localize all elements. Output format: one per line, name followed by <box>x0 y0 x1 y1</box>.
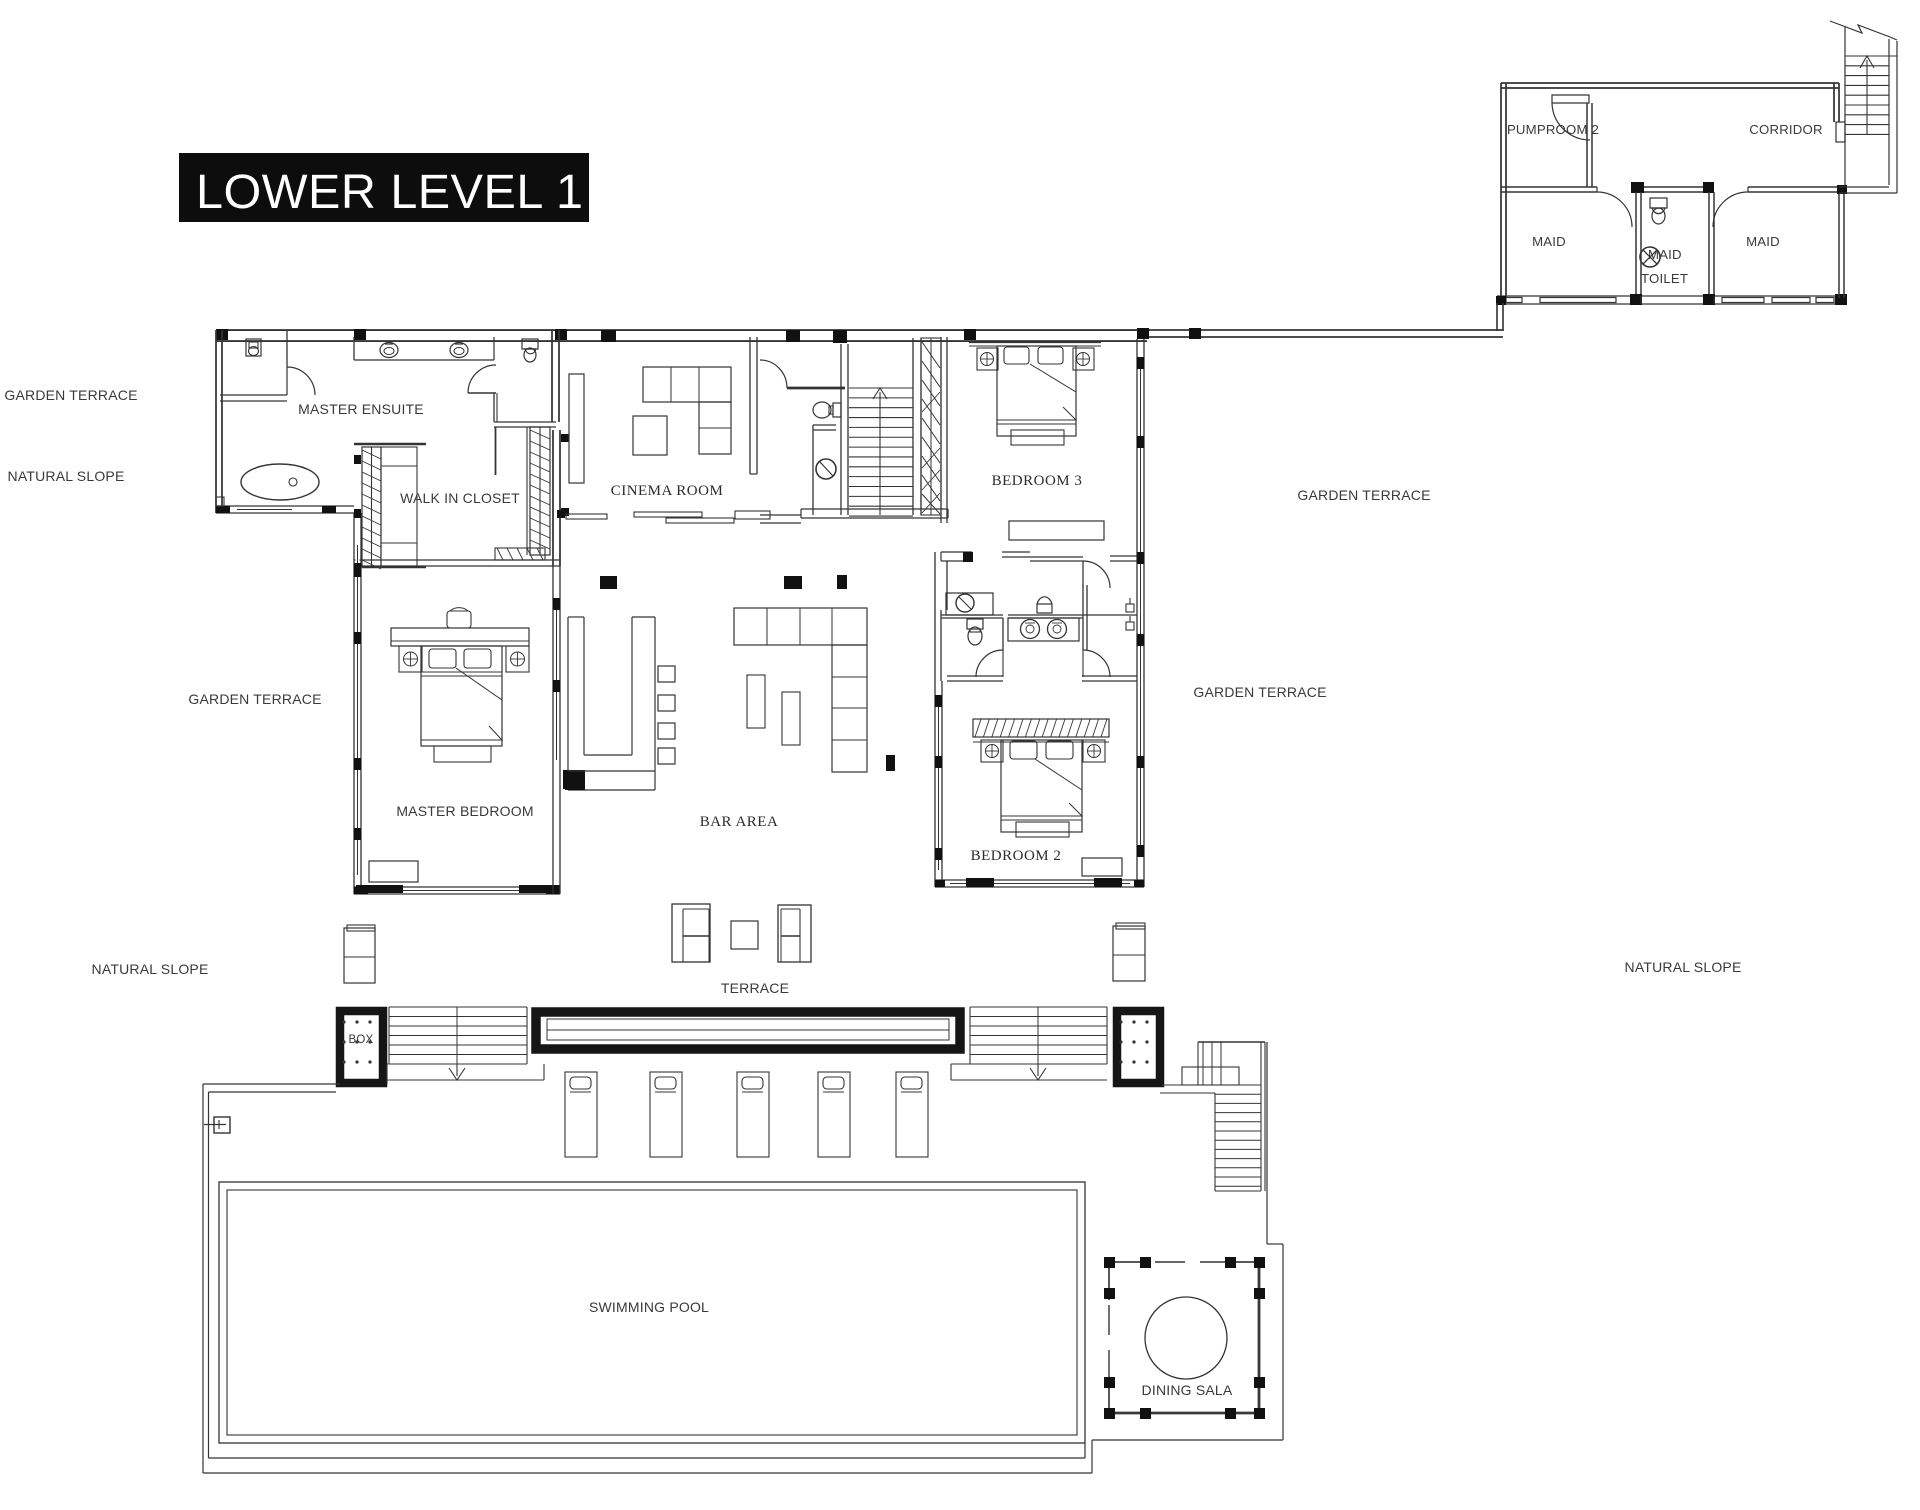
svg-text:GARDEN TERRACE: GARDEN TERRACE <box>4 387 137 403</box>
svg-text:TOILET: TOILET <box>1641 271 1688 286</box>
svg-text:GARDEN TERRACE: GARDEN TERRACE <box>1297 487 1430 503</box>
svg-text:MAID: MAID <box>1746 234 1780 249</box>
svg-text:NATURAL SLOPE: NATURAL SLOPE <box>92 961 209 977</box>
svg-text:WALK IN CLOSET: WALK IN CLOSET <box>400 490 520 506</box>
svg-text:BOX: BOX <box>349 1034 374 1046</box>
svg-text:LOWER LEVEL 1: LOWER LEVEL 1 <box>196 165 583 219</box>
svg-text:MASTER ENSUITE: MASTER ENSUITE <box>298 401 424 417</box>
svg-text:MAID: MAID <box>1648 247 1682 262</box>
svg-text:TERRACE: TERRACE <box>721 980 789 996</box>
svg-text:BEDROOM 3: BEDROOM 3 <box>992 473 1083 489</box>
svg-text:CINEMA ROOM: CINEMA ROOM <box>611 483 724 499</box>
svg-text:NATURAL SLOPE: NATURAL SLOPE <box>1625 959 1742 975</box>
svg-text:GARDEN TERRACE: GARDEN TERRACE <box>1193 684 1326 700</box>
svg-text:BAR AREA: BAR AREA <box>700 814 779 830</box>
svg-text:BEDROOM 2: BEDROOM 2 <box>971 848 1062 864</box>
svg-text:CORRIDOR: CORRIDOR <box>1749 122 1822 137</box>
svg-text:DINING SALA: DINING SALA <box>1142 1382 1233 1398</box>
svg-text:NATURAL SLOPE: NATURAL SLOPE <box>8 468 125 484</box>
svg-text:MAID: MAID <box>1532 234 1566 249</box>
svg-text:GARDEN TERRACE: GARDEN TERRACE <box>188 691 321 707</box>
svg-text:PUMPROOM 2: PUMPROOM 2 <box>1507 122 1599 137</box>
svg-text:SWIMMING POOL: SWIMMING POOL <box>589 1299 709 1315</box>
svg-text:MASTER BEDROOM: MASTER BEDROOM <box>396 803 533 819</box>
